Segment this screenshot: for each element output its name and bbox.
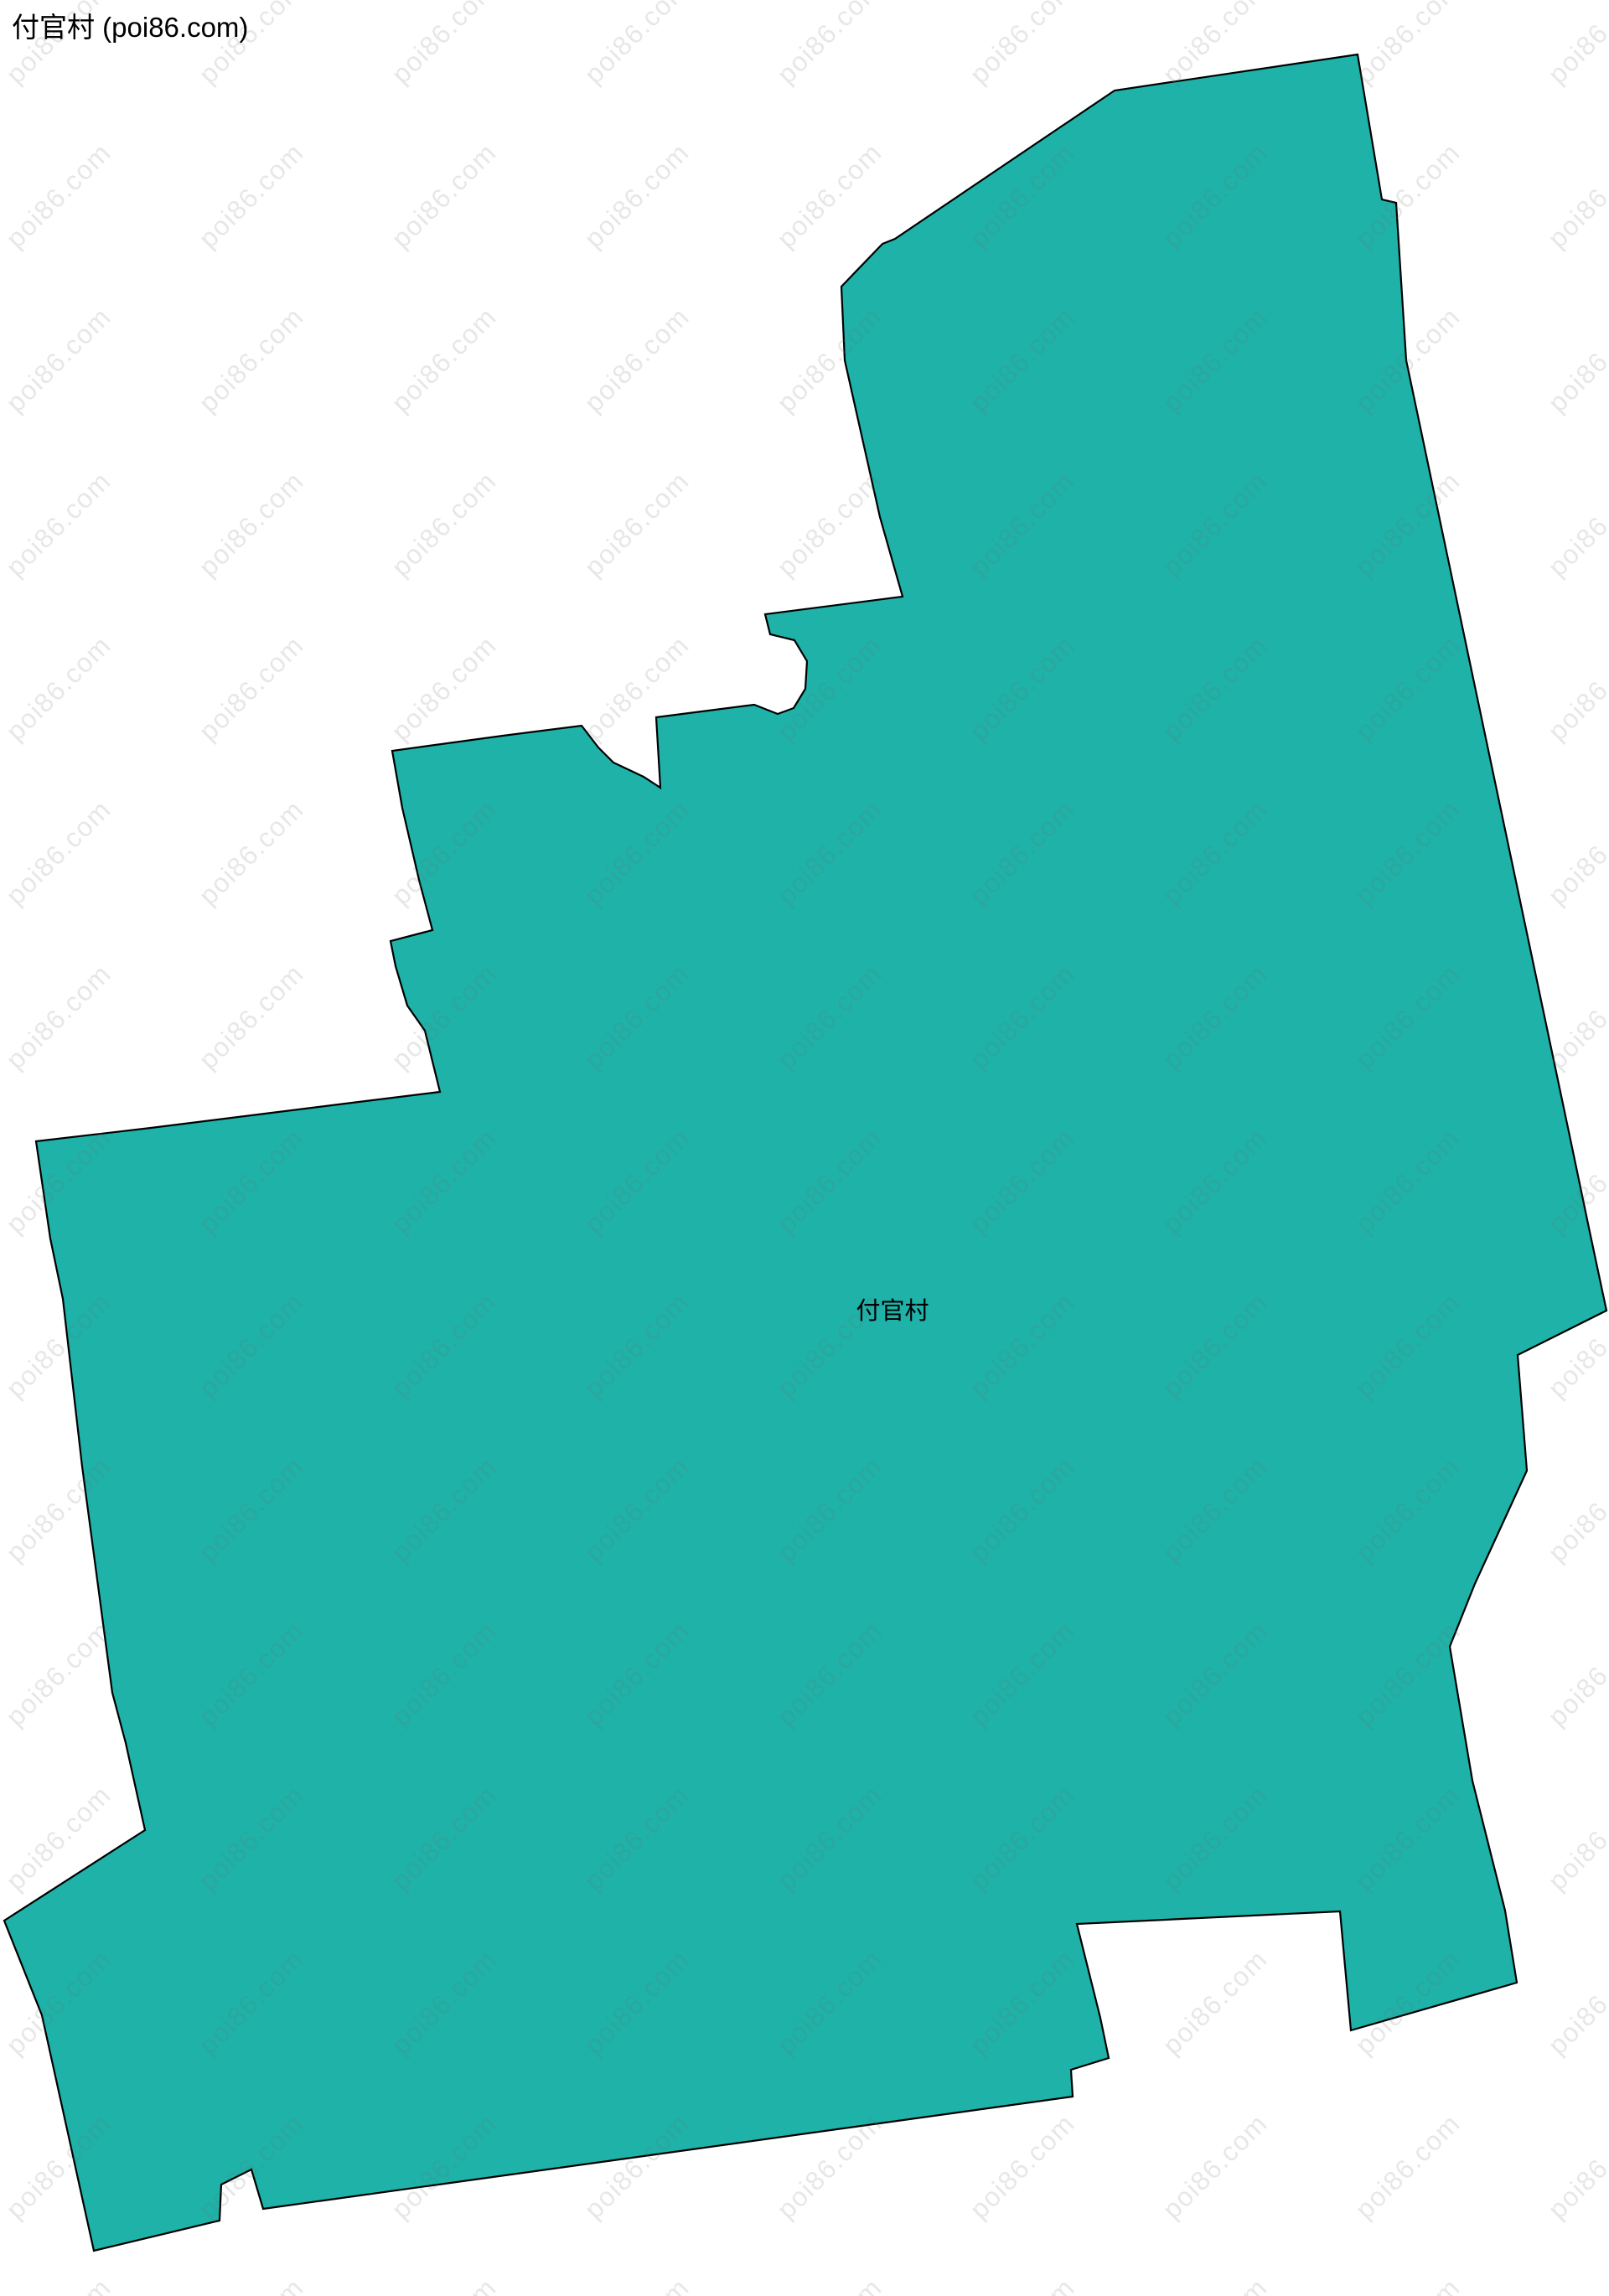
village-label: 付官村: [856, 1291, 929, 1326]
page-title: 付官村 (poi86.com): [12, 5, 248, 45]
map-page: poi86.compoi86.compoi86.compoi86.compoi8…: [0, 0, 1609, 2296]
village-boundary-polygon: [4, 54, 1606, 2251]
village-boundary-map: [0, 0, 1609, 2296]
